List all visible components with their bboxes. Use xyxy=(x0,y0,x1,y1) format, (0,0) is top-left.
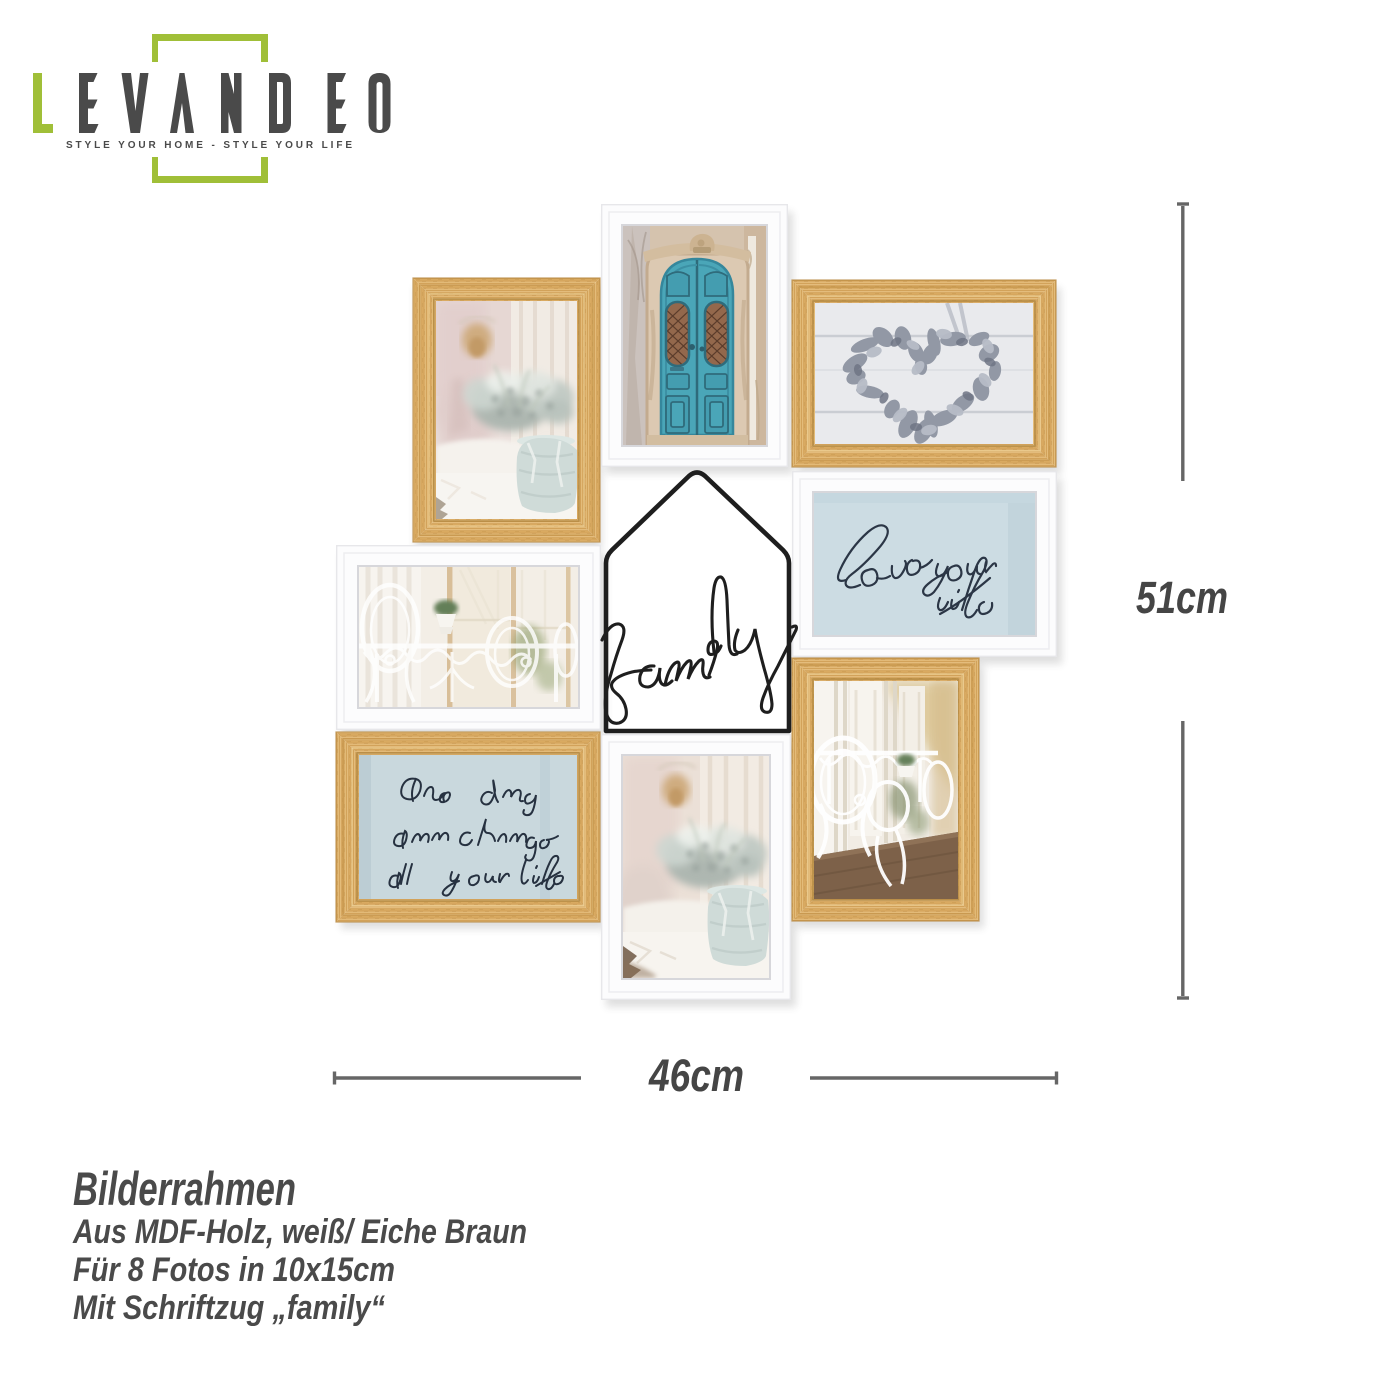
svg-text:Bilderrahmen: Bilderrahmen xyxy=(73,1162,296,1215)
svg-text:Aus MDF-Holz, weiß/ Eiche Brau: Aus MDF-Holz, weiß/ Eiche Braun xyxy=(72,1213,527,1251)
svg-text:Für 8 Fotos in 10x15cm: Für 8 Fotos in 10x15cm xyxy=(73,1251,395,1289)
svg-text:Mit Schriftzug „family“: Mit Schriftzug „family“ xyxy=(73,1289,385,1327)
svg-text:46cm: 46cm xyxy=(648,1050,744,1101)
svg-text:51cm: 51cm xyxy=(1136,572,1228,623)
svg-text:STYLE YOUR HOME - STYLE YOUR L: STYLE YOUR HOME - STYLE YOUR LIFE xyxy=(66,140,354,151)
